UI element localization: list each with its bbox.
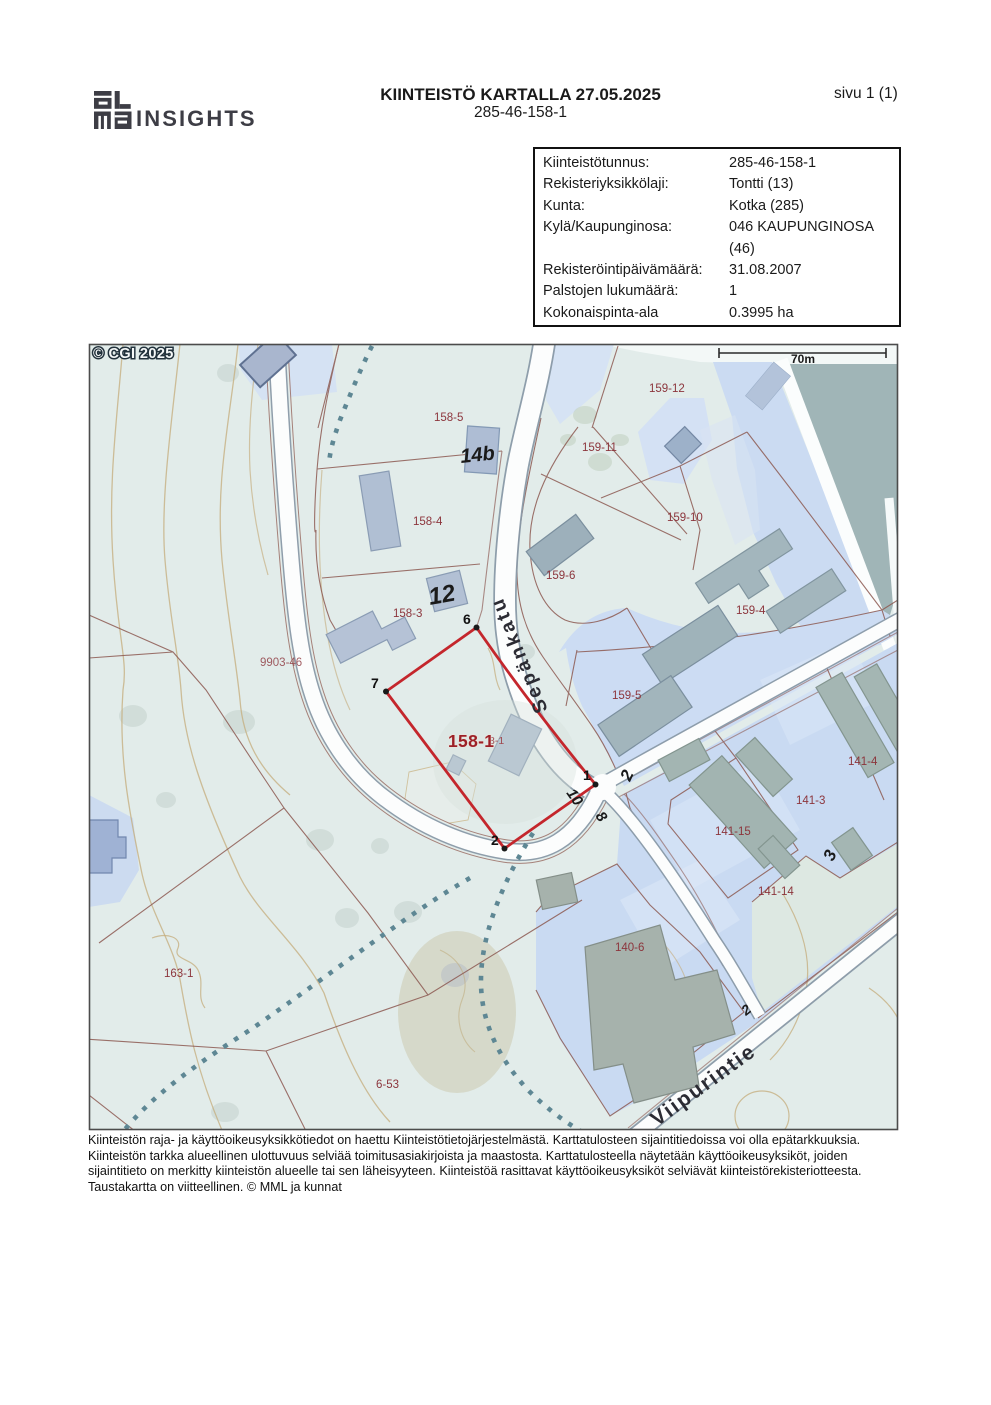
- svg-text:159-6: 159-6: [546, 570, 575, 582]
- svg-text:© CGI 2025: © CGI 2025: [93, 346, 174, 362]
- svg-text:163-1: 163-1: [164, 968, 193, 980]
- svg-text:158-3: 158-3: [393, 608, 422, 620]
- svg-text:158-4: 158-4: [413, 516, 443, 528]
- svg-text:141-14: 141-14: [758, 886, 794, 898]
- svg-text:12: 12: [426, 580, 458, 611]
- svg-text:159-10: 159-10: [667, 512, 703, 524]
- svg-text:7: 7: [371, 675, 379, 691]
- svg-text:14b: 14b: [459, 442, 496, 467]
- svg-text:6: 6: [463, 611, 471, 627]
- svg-text:141-15: 141-15: [715, 826, 751, 838]
- svg-text:1: 1: [583, 767, 591, 783]
- svg-text:6-53: 6-53: [376, 1079, 399, 1091]
- svg-text:159-11: 159-11: [582, 442, 617, 454]
- svg-text:141-3: 141-3: [796, 795, 825, 807]
- svg-text:159-12: 159-12: [649, 383, 685, 395]
- svg-text:2: 2: [491, 832, 499, 848]
- svg-text:141-4: 141-4: [848, 756, 878, 768]
- svg-text:158-1: 158-1: [448, 731, 494, 751]
- svg-text:158-5: 158-5: [434, 412, 463, 424]
- svg-text:9903-46: 9903-46: [260, 657, 302, 669]
- svg-text:70m: 70m: [791, 352, 815, 366]
- svg-text:159-5: 159-5: [612, 690, 641, 702]
- svg-text:159-4: 159-4: [736, 605, 766, 617]
- svg-text:140-6: 140-6: [615, 942, 644, 954]
